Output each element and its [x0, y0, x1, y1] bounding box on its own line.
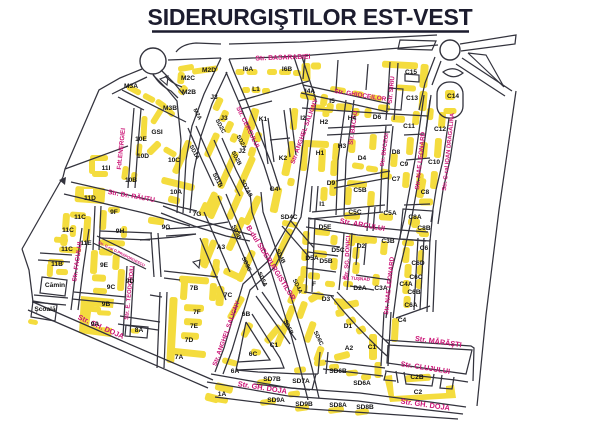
svg-text:H3: H3: [338, 143, 347, 150]
svg-text:C15: C15: [405, 69, 417, 76]
svg-text:G4: G4: [270, 186, 279, 193]
svg-text:SD9A: SD9A: [267, 397, 285, 404]
svg-text:9A: 9A: [91, 321, 100, 328]
svg-text:SD4C: SD4C: [280, 214, 297, 221]
svg-text:C4A: C4A: [399, 281, 412, 288]
svg-text:C2: C2: [414, 389, 423, 396]
svg-text:D5E: D5E: [319, 224, 332, 231]
svg-text:I1: I1: [319, 201, 325, 208]
svg-text:D2: D2: [357, 243, 366, 250]
svg-text:11B: 11B: [51, 261, 63, 268]
svg-text:7G: 7G: [193, 211, 202, 218]
svg-text:11C: 11C: [62, 227, 74, 234]
svg-text:I6A: I6A: [243, 66, 253, 73]
svg-text:GSI: GSI: [151, 129, 163, 136]
svg-text:C9: C9: [400, 161, 409, 168]
svg-text:7A: 7A: [175, 354, 184, 361]
svg-text:D9: D9: [327, 180, 336, 187]
svg-text:D8: D8: [392, 149, 401, 156]
svg-text:I2: I2: [300, 115, 306, 122]
svg-text:D6: D6: [373, 114, 382, 121]
svg-text:C8: C8: [421, 189, 430, 196]
svg-text:J3: J3: [220, 115, 228, 122]
svg-text:C5A: C5A: [383, 210, 396, 217]
svg-text:10D: 10D: [137, 153, 149, 160]
svg-text:10C: 10C: [168, 157, 180, 164]
svg-text:C6B: C6B: [407, 289, 420, 296]
svg-text:Şcoală: Şcoală: [34, 306, 56, 313]
svg-text:D5C: D5C: [331, 247, 344, 254]
svg-text:I4A: I4A: [305, 88, 315, 95]
svg-text:SD7B: SD7B: [263, 376, 281, 383]
svg-text:Cămin: Cămin: [45, 282, 65, 289]
svg-text:A2: A2: [345, 345, 354, 352]
svg-text:C5B: C5B: [353, 187, 366, 194]
svg-text:7C: 7C: [224, 292, 233, 299]
svg-text:M2C: M2C: [181, 75, 195, 82]
svg-text:M3A: M3A: [124, 83, 138, 90]
svg-text:C2B: C2B: [410, 374, 423, 381]
svg-text:10E: 10E: [135, 136, 147, 143]
svg-text:J2: J2: [238, 148, 246, 155]
svg-text:9H: 9H: [116, 228, 125, 235]
svg-text:SD9B: SD9B: [295, 401, 313, 408]
svg-text:SD8B: SD8B: [356, 404, 374, 411]
svg-text:I6B: I6B: [282, 66, 292, 73]
svg-text:7F: 7F: [193, 309, 201, 316]
svg-text:M3B: M3B: [163, 105, 177, 112]
svg-text:C7: C7: [392, 176, 401, 183]
svg-text:8A: 8A: [135, 327, 144, 334]
svg-text:J3: J3: [210, 94, 218, 101]
svg-text:C8A: C8A: [408, 214, 421, 221]
svg-text:C3B: C3B: [381, 238, 394, 245]
svg-text:SD6A: SD6A: [353, 380, 371, 387]
svg-text:C4: C4: [398, 317, 407, 324]
svg-text:6B: 6B: [242, 311, 251, 318]
svg-text:I5: I5: [329, 98, 335, 105]
svg-text:9F: 9F: [110, 209, 118, 216]
svg-text:9E: 9E: [100, 262, 109, 269]
svg-text:9G: 9G: [162, 224, 171, 231]
svg-text:H2: H2: [320, 119, 329, 126]
svg-text:6A: 6A: [231, 368, 240, 375]
svg-text:D4: D4: [358, 155, 367, 162]
svg-text:10A: 10A: [170, 189, 182, 196]
svg-text:M2D: M2D: [202, 67, 216, 74]
svg-text:C12: C12: [434, 126, 446, 133]
svg-text:D5A: D5A: [305, 255, 318, 262]
svg-text:SD7A: SD7A: [292, 378, 310, 385]
svg-text:11D: 11D: [84, 195, 96, 202]
svg-text:K2: K2: [279, 155, 288, 162]
svg-text:11C: 11C: [61, 246, 73, 253]
svg-text:C10: C10: [428, 159, 440, 166]
svg-text:11E: 11E: [80, 240, 92, 247]
svg-text:7D: 7D: [185, 337, 194, 344]
svg-text:C6C: C6C: [409, 274, 422, 281]
svg-text:A3: A3: [217, 244, 226, 251]
svg-text:F: F: [312, 281, 316, 288]
svg-text:7B: 7B: [190, 285, 199, 292]
svg-text:C1: C1: [368, 344, 377, 351]
svg-text:L1: L1: [252, 86, 260, 93]
svg-text:C6D: C6D: [411, 260, 424, 267]
svg-text:D5B: D5B: [319, 258, 332, 265]
svg-text:10B: 10B: [125, 177, 137, 184]
svg-text:C8B: C8B: [417, 225, 430, 232]
svg-text:K1: K1: [259, 116, 268, 123]
svg-text:D3: D3: [322, 296, 331, 303]
svg-text:SD8A: SD8A: [329, 402, 347, 409]
svg-text:M2B: M2B: [182, 89, 196, 96]
svg-text:C1: C1: [270, 342, 279, 349]
svg-text:9C: 9C: [107, 284, 116, 291]
svg-text:1A: 1A: [218, 391, 227, 398]
svg-text:C5C: C5C: [348, 209, 361, 216]
svg-text:D2A: D2A: [353, 285, 366, 292]
svg-text:9B: 9B: [102, 301, 111, 308]
svg-text:C3A: C3A: [374, 285, 387, 292]
svg-text:H4: H4: [348, 115, 357, 122]
svg-text:6C: 6C: [249, 351, 258, 358]
svg-text:D1: D1: [344, 323, 353, 330]
svg-text:C13: C13: [406, 95, 418, 102]
svg-text:11I: 11I: [102, 165, 111, 172]
svg-text:C11: C11: [403, 123, 415, 130]
svg-text:C6: C6: [420, 245, 429, 252]
svg-text:C6A: C6A: [404, 302, 417, 309]
svg-text:C14: C14: [447, 93, 459, 100]
svg-text:SD6B: SD6B: [329, 368, 347, 375]
svg-text:7E: 7E: [190, 323, 199, 330]
svg-text:11C: 11C: [74, 214, 86, 221]
svg-text:SIDERURGIŞTILOR EST-VEST: SIDERURGIŞTILOR EST-VEST: [148, 4, 473, 30]
svg-text:H1: H1: [316, 150, 325, 157]
svg-text:9D: 9D: [126, 278, 135, 285]
